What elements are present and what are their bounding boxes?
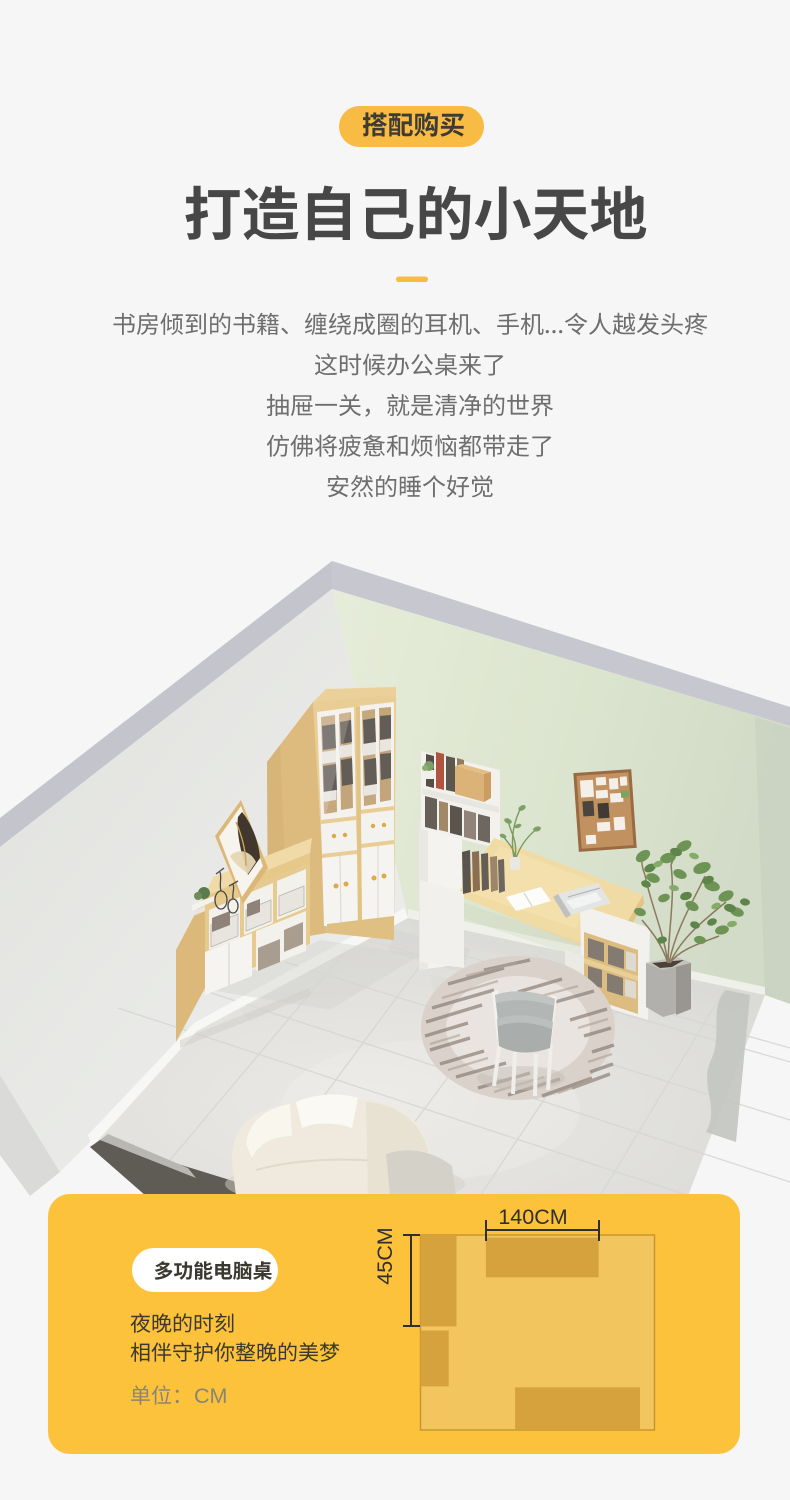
svg-text:45CM: 45CM (373, 1227, 397, 1284)
svg-text:CM: CM (194, 1384, 227, 1408)
svg-text:140CM: 140CM (498, 1205, 567, 1229)
